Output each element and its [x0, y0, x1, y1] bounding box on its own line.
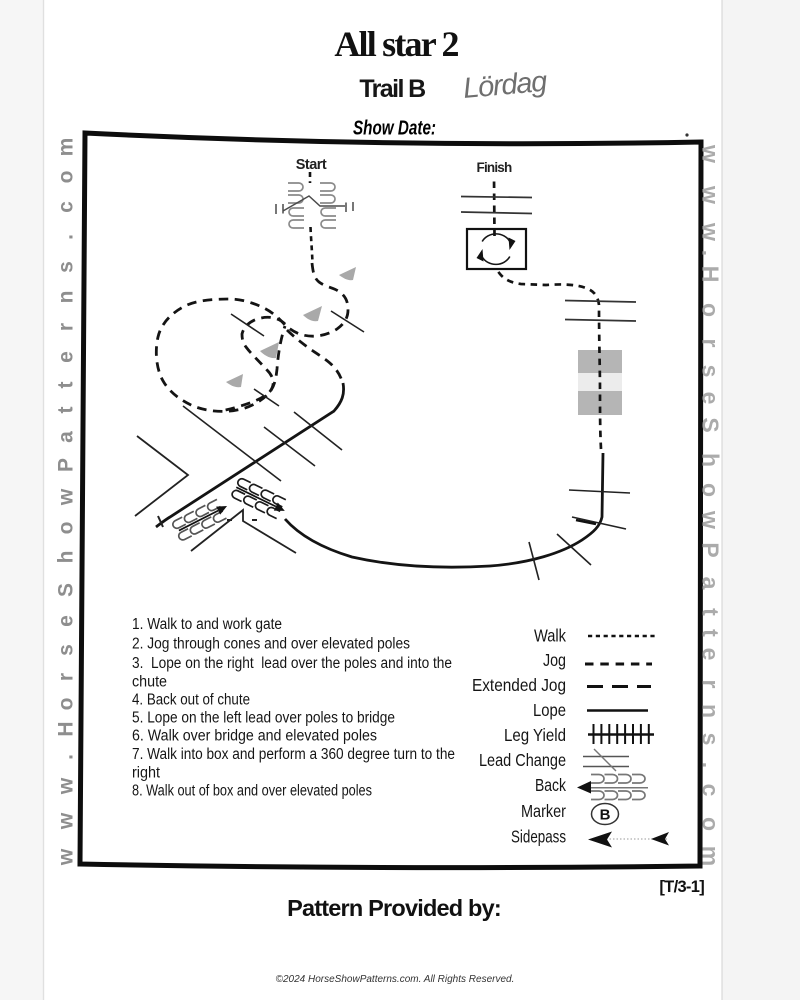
- svg-text:r: r: [698, 339, 724, 348]
- svg-text:8. Walk out of box and over el: 8. Walk out of box and over elevated pol…: [132, 783, 372, 800]
- svg-text:Lope: Lope: [533, 700, 566, 720]
- svg-text:e: e: [698, 648, 724, 661]
- svg-text:4. Back out of chute: 4. Back out of chute: [132, 692, 250, 709]
- svg-text:t: t: [698, 608, 724, 616]
- svg-text:n: n: [698, 704, 724, 718]
- svg-text:[T/3-1]: [T/3-1]: [659, 878, 704, 896]
- svg-text:r: r: [698, 680, 724, 689]
- svg-text:S: S: [55, 583, 78, 597]
- svg-text:e: e: [55, 351, 78, 363]
- svg-text:.: .: [698, 250, 724, 256]
- svg-text:Show Date:: Show Date:: [353, 118, 436, 140]
- svg-text:a: a: [55, 431, 78, 443]
- svg-text:o: o: [55, 171, 78, 184]
- svg-text:P: P: [55, 458, 78, 472]
- svg-text:2. Jog through cones and over: 2. Jog through cones and over elevated p…: [132, 636, 410, 653]
- svg-text:Extended Jog: Extended Jog: [472, 675, 566, 695]
- svg-text:a: a: [698, 577, 724, 590]
- svg-text:w: w: [698, 144, 724, 163]
- svg-text:m: m: [55, 138, 78, 157]
- svg-text:o: o: [698, 303, 724, 317]
- svg-text:c: c: [698, 784, 724, 797]
- svg-text:7. Walk into box and perform a: 7. Walk into box and perform a 360 degre…: [132, 746, 455, 763]
- svg-text:s: s: [698, 365, 724, 378]
- svg-text:e: e: [698, 392, 724, 405]
- svg-text:Sidepass: Sidepass: [511, 827, 566, 847]
- svg-text:6. Walk over bridge and elevat: 6. Walk over bridge and elevated poles: [132, 728, 377, 745]
- svg-text:e: e: [55, 615, 78, 627]
- svg-text:s: s: [55, 644, 78, 656]
- svg-text:S: S: [698, 417, 724, 432]
- svg-text:.: .: [55, 234, 78, 240]
- svg-text:o: o: [55, 522, 78, 535]
- svg-text:Walk: Walk: [534, 626, 566, 646]
- svg-text:5. Lope on the left lead over: 5. Lope on the left lead over poles to b…: [132, 710, 395, 727]
- svg-text:©2024 HorseShowPatterns.com. A: ©2024 HorseShowPatterns.com. All Rights …: [276, 974, 515, 985]
- svg-text:P: P: [698, 542, 724, 557]
- svg-text:Marker: Marker: [521, 801, 566, 821]
- svg-text:o: o: [55, 698, 78, 711]
- svg-text:H: H: [698, 266, 724, 283]
- svg-text:r: r: [55, 673, 78, 681]
- svg-text:Pattern Provided by:: Pattern Provided by:: [287, 895, 501, 921]
- svg-text:w: w: [698, 222, 724, 241]
- svg-text:c: c: [55, 201, 78, 213]
- svg-text:w: w: [698, 185, 724, 204]
- svg-text:H: H: [55, 721, 78, 736]
- svg-text:.: .: [55, 754, 78, 760]
- svg-text:Trail B: Trail B: [359, 75, 425, 103]
- svg-text:h: h: [55, 551, 78, 564]
- svg-text:o: o: [698, 483, 724, 497]
- svg-text:Start: Start: [296, 157, 327, 173]
- svg-text:1. Walk to and work gate: 1. Walk to and work gate: [132, 616, 282, 633]
- svg-text:t: t: [698, 629, 724, 637]
- svg-text:w: w: [698, 510, 724, 529]
- svg-text:Lördag: Lördag: [462, 66, 549, 105]
- svg-text:s: s: [698, 733, 724, 746]
- svg-text:chute: chute: [132, 674, 167, 691]
- svg-text:Jog: Jog: [543, 650, 566, 670]
- svg-text:m: m: [698, 846, 724, 866]
- svg-text:All star 2: All star 2: [334, 24, 458, 64]
- svg-text:w: w: [55, 848, 78, 866]
- svg-text:t: t: [55, 382, 78, 389]
- svg-text:h: h: [698, 453, 724, 467]
- svg-text:s: s: [55, 261, 78, 273]
- svg-text:right: right: [132, 765, 161, 782]
- svg-text:Back: Back: [535, 775, 566, 795]
- svg-text:w: w: [55, 777, 78, 795]
- svg-text:.: .: [698, 762, 724, 768]
- svg-text:r: r: [55, 323, 78, 331]
- svg-text:Finish: Finish: [477, 160, 513, 175]
- svg-text:w: w: [55, 812, 78, 830]
- svg-text:t: t: [55, 407, 78, 414]
- svg-text:Lead Change: Lead Change: [479, 750, 566, 770]
- svg-text:o: o: [698, 817, 724, 831]
- svg-text:Leg Yield: Leg Yield: [504, 725, 566, 745]
- svg-text:B: B: [600, 807, 611, 824]
- svg-text:w: w: [55, 488, 78, 506]
- svg-text:3. Lope on the right lead ov: 3. Lope on the right lead over the poles…: [132, 655, 452, 672]
- svg-text:n: n: [55, 291, 78, 304]
